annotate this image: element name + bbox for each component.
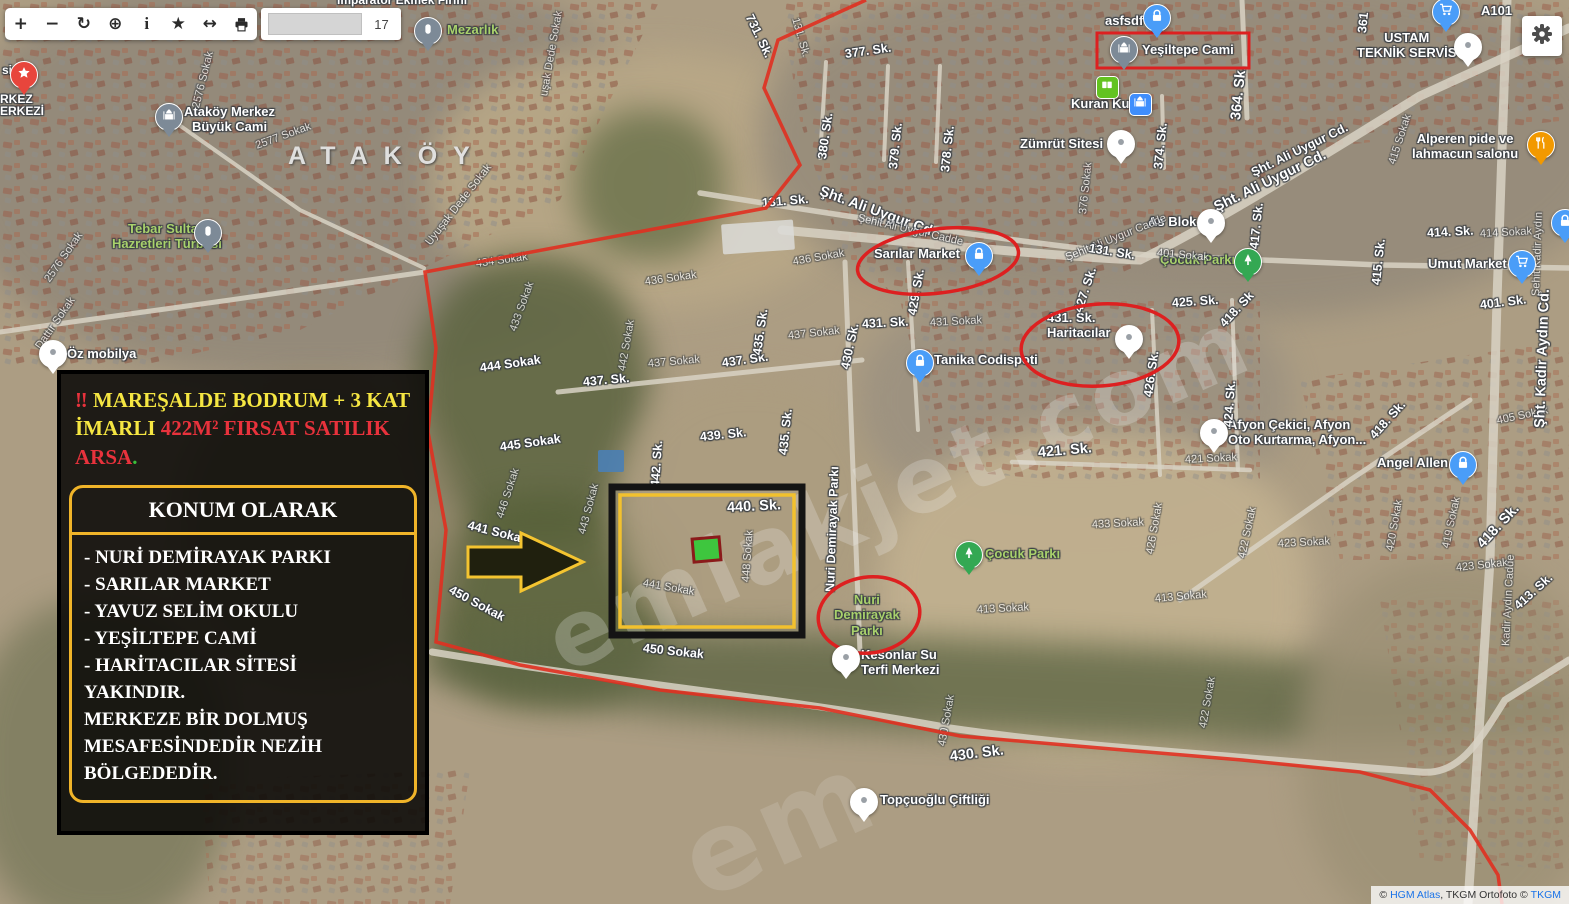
map-pin-umut-market[interactable] [1508, 250, 1536, 278]
street-label: 437 Sokak [647, 353, 700, 369]
map-pin--z-mobilya[interactable] [39, 340, 67, 368]
mosque-icon [1133, 95, 1147, 114]
lock-icon [913, 354, 927, 373]
map-pin-red-star[interactable] [10, 61, 38, 89]
tree-icon [1241, 253, 1255, 272]
poi-label: Sarılar Market [874, 246, 960, 261]
map-pin-atak-y-merkez[interactable] [155, 103, 183, 131]
zoom-out-button[interactable]: − [39, 11, 65, 37]
listing-title-segment: 422M² FIRSAT SATILIK [161, 416, 390, 440]
street-label: 414. Sk. [1427, 224, 1474, 240]
location-list-item: - NURİ DEMİRAYAK PARKI [84, 545, 402, 572]
attribution-link[interactable]: HGM Atlas [1390, 889, 1440, 901]
zoom-in-button[interactable]: + [8, 11, 34, 37]
mosque-icon [1117, 41, 1131, 60]
place-icon [46, 345, 60, 364]
map-pin-asfsdf[interactable] [1143, 4, 1171, 32]
location-list-item: YAKINDIR. [84, 680, 402, 707]
partial-label: İmparator Ekmek Fırını [337, 0, 467, 7]
poi-label: Angel Allen [1377, 455, 1448, 470]
zoom-box: 17 [261, 8, 401, 40]
poi-label: Umut Market [1428, 256, 1507, 271]
place-icon [1204, 214, 1218, 233]
tree-icon [962, 546, 976, 565]
street-label: 430. Sk. [949, 742, 1005, 764]
cart-icon [1439, 3, 1453, 22]
attribution-text: © [1379, 889, 1390, 901]
poi-label: Nuri Demirayak Parkı [834, 592, 900, 638]
poi-label: Afyon Çekici, Afyon Oto Kurtarma, Afyon.… [1228, 417, 1366, 448]
street-label: 440. Sk. [727, 497, 782, 516]
map-pin-blue-square[interactable] [1129, 93, 1152, 116]
settings-button[interactable] [1522, 16, 1562, 56]
poi-label: Çocuk Parkı [985, 546, 1060, 561]
poi-label: Öz mobilya [67, 346, 136, 361]
map-pin-tanika-codispoti[interactable] [906, 349, 934, 377]
listing-title-segment: ‼ [75, 388, 93, 412]
map-pin-afyon-ekici-afyon[interactable] [1200, 419, 1228, 447]
gear-icon [1530, 22, 1554, 51]
street-label: 419 Sokak [1440, 496, 1463, 549]
street-label: 361 [1355, 12, 1371, 34]
street-label: Şht. Kadir Aydın Cd. [1532, 289, 1553, 429]
poi-label: Zümrüt Sitesi [1020, 136, 1103, 151]
region-label: ATAKÖY [288, 142, 486, 171]
search-input[interactable] [268, 13, 362, 35]
map-pin--ocuk-park-[interactable] [955, 541, 983, 569]
street-label: 401. Sk. [1479, 292, 1527, 312]
book-icon [1100, 78, 1114, 97]
poi-label: Yeşiltepe Cami [1142, 42, 1234, 57]
poi-label: Tanika Codispoti [934, 352, 1038, 367]
street-label: 418. Sk. [1474, 501, 1523, 551]
map-pin-z-mr-t-sitesi[interactable] [1107, 130, 1135, 158]
listing-title-segment: . [132, 445, 137, 469]
map-pin-kuran-kursu[interactable] [1096, 76, 1119, 99]
terrain-trees-topcenter [575, 110, 725, 260]
cemetery-icon [421, 22, 435, 41]
zoom-level-value: 17 [362, 17, 401, 32]
street-label: 731. Sk. [743, 12, 776, 60]
refresh-button[interactable]: ↻ [71, 11, 97, 37]
mosque-icon [162, 108, 176, 127]
poi-label: Alperen pide ve lahmacun salonu [1412, 131, 1518, 162]
map-pin-431-sk-[interactable] [1115, 325, 1143, 353]
listing-title: ‼ MAREŞALDE BODRUM + 3 KAT İMARLI 422M² … [61, 374, 425, 475]
map-pin--ocuk-park-[interactable] [1234, 248, 1262, 276]
attribution-text: , TKGM Ortofoto © [1440, 889, 1530, 901]
favorite-button[interactable]: ★ [165, 11, 191, 37]
poi-label: A101 [1481, 3, 1512, 18]
street-label: 420 Sokak [1384, 499, 1405, 552]
location-box-header: KONUM OLARAK [72, 488, 414, 535]
location-list-item: - SARILAR MARKET [84, 572, 402, 599]
lock-icon [1150, 9, 1164, 28]
star-icon [17, 66, 31, 85]
location-list-item: - YAVUZ SELİM OKULU [84, 599, 402, 626]
map-pin-ye-iltepe-cami[interactable] [1110, 36, 1138, 64]
map-pin-ustam[interactable] [1454, 33, 1482, 61]
map-pin-alperen-pide-ve[interactable] [1527, 131, 1555, 159]
map-pin-tebar-sultan[interactable] [194, 219, 222, 247]
street-label: 430. Sk. [838, 322, 861, 370]
street-label: 437 Sokak [787, 325, 840, 342]
terrain-bottomright [1300, 560, 1569, 904]
map-pin-top-uo-lu-iftli-i[interactable] [850, 788, 878, 816]
partial-label: ERKEZİ [0, 104, 44, 118]
map-pin-sar-lar-market[interactable] [965, 242, 993, 270]
lock-icon [972, 247, 986, 266]
location-list-item: BÖLGEDEDİR. [84, 761, 402, 788]
place-icon [1122, 330, 1136, 349]
lock-icon [1456, 456, 1470, 475]
map-toolbar: +−↻⊕i★↔ [5, 8, 257, 40]
listing-title-segment: İMARLI [75, 416, 161, 440]
tomb-icon [201, 224, 215, 243]
map-pin-angel-allen[interactable] [1449, 451, 1477, 479]
place-icon [839, 650, 853, 669]
map-pin-kesonlar-su[interactable] [832, 645, 860, 673]
lock-icon [1558, 214, 1569, 233]
restaurant-icon [1534, 136, 1548, 155]
poi-label: Kesonlar Su Terfi Merkezi [861, 647, 940, 678]
street-label: 423 Sokak [1278, 535, 1331, 550]
cart-icon [1515, 255, 1529, 274]
place-icon [1461, 38, 1475, 57]
location-list: - NURİ DEMİRAYAK PARKI- SARILAR MARKET- … [72, 535, 414, 800]
place-icon [857, 793, 871, 812]
poi-label: Mezarlık [447, 22, 498, 37]
listing-info-panel: ‼ MAREŞALDE BODRUM + 3 KAT İMARLI 422M² … [57, 370, 429, 835]
poi-label: asfsdf [1105, 13, 1143, 28]
print-button[interactable] [228, 11, 254, 37]
place-icon [1114, 135, 1128, 154]
info-button[interactable]: i [134, 11, 160, 37]
location-box: KONUM OLARAK - NURİ DEMİRAYAK PARKI- SAR… [69, 485, 417, 803]
poi-label: 431. Sk. Haritacılar [1047, 310, 1111, 341]
poi-label: Topçuoğlu Çiftliği [880, 792, 990, 807]
map-pin-mezarl-k[interactable] [414, 17, 442, 45]
measure-button[interactable]: ↔ [197, 11, 223, 37]
street-label: 431. Sk. [862, 315, 909, 331]
map-attribution: © HGM Atlas, TKGM Ortofoto © TKGM [1371, 886, 1569, 904]
street-label: 418. Sk. [1367, 398, 1409, 442]
listing-title-segment: ARSA [75, 445, 132, 469]
listing-title-segment: MAREŞALDE BODRUM + 3 KAT [93, 388, 410, 412]
place-icon [1207, 424, 1221, 443]
map-pin-as-blok[interactable] [1197, 209, 1225, 237]
location-list-item: - HARİTACILAR SİTESİ [84, 653, 402, 680]
location-list-item: MERKEZE BİR DOLMUŞ [84, 707, 402, 734]
location-list-item: MESAFESİNDEDİR NEZİH [84, 734, 402, 761]
street-label: 131. Sk. [789, 16, 812, 58]
attribution-link[interactable]: TKGM [1531, 889, 1561, 901]
locate-button[interactable]: ⊕ [102, 11, 128, 37]
location-list-item: - YEŞİLTEPE CAMİ [84, 626, 402, 653]
